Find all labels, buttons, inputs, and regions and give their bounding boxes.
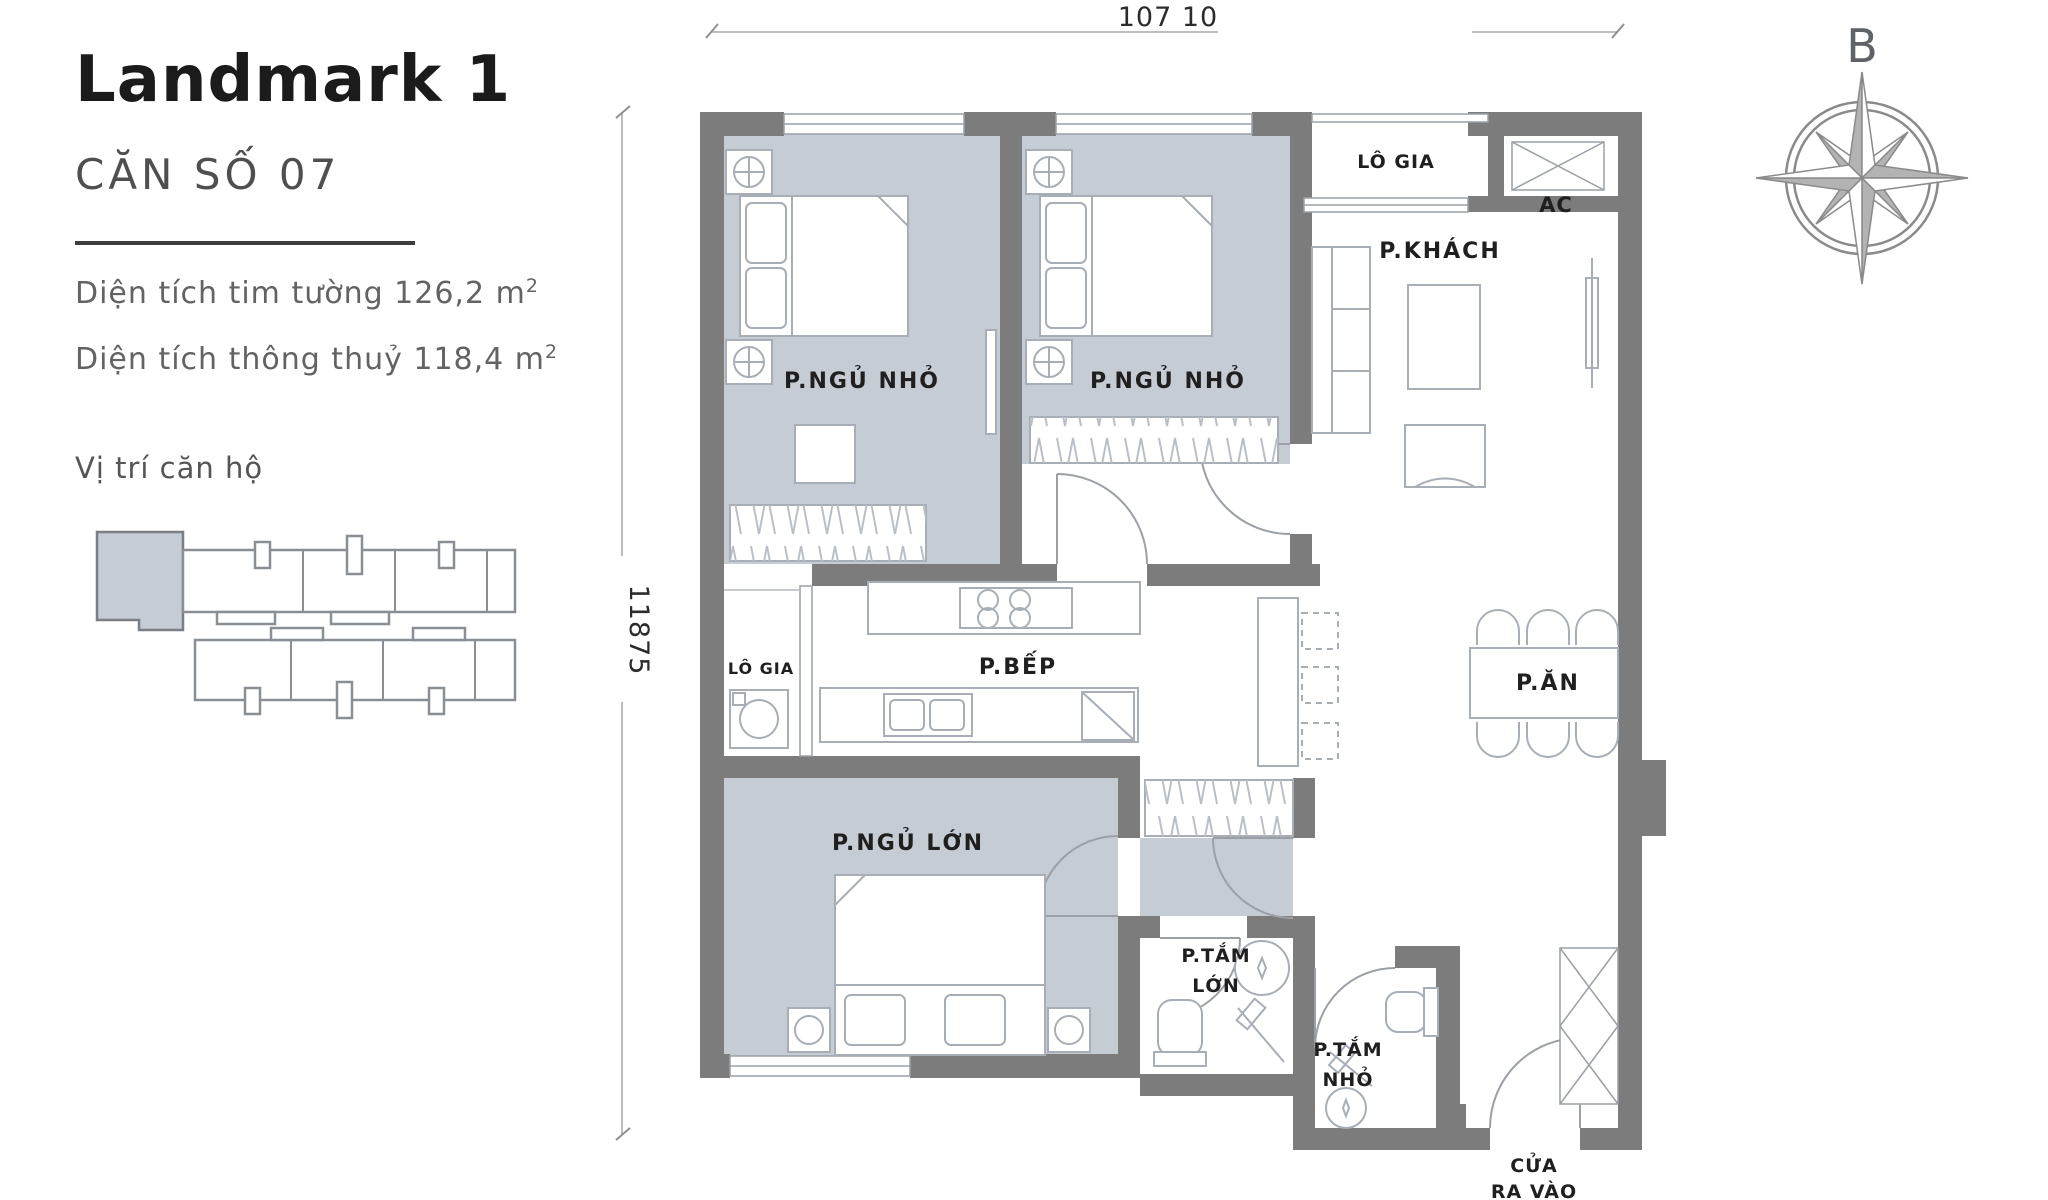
notch [439, 542, 454, 568]
label-bath-small-1: P.TẮM [1313, 1035, 1382, 1061]
label-bedroom-small-2: P.NGỦ NHỎ [1090, 366, 1246, 394]
highlighted-unit [97, 532, 183, 630]
notch [347, 536, 362, 574]
label-logia-side: LÔ GIA [728, 659, 794, 678]
top-dimension-value: 107 10 [1118, 2, 1218, 33]
washing-machine [730, 690, 788, 748]
label-living: P.KHÁCH [1379, 238, 1501, 264]
bath-small-door [1315, 968, 1395, 1048]
label-kitchen: P.BẾP [979, 651, 1057, 680]
living-furniture [1312, 247, 1598, 487]
notch [429, 688, 444, 714]
left-dimension-value: 11875 [623, 585, 654, 676]
compass-cardinal-points [1756, 72, 1968, 284]
master-window [730, 1056, 910, 1076]
balcony-railing [1312, 114, 1488, 122]
location-label: Vị trí căn hộ [75, 451, 575, 485]
notch [245, 688, 260, 714]
left-dimension: 11875 [616, 106, 654, 1140]
compass-north-label: B [1846, 19, 1878, 73]
hall-closet [1560, 948, 1618, 1104]
building-location-map [95, 528, 575, 728]
notch [255, 542, 270, 568]
bedroom1-window [784, 114, 964, 134]
area-net-sup: 2 [545, 341, 558, 363]
kitchen-island [1258, 598, 1338, 766]
label-ac: AC [1539, 193, 1573, 217]
label-entrance-2: RA VÀO [1491, 1180, 1577, 1200]
tab [271, 628, 323, 640]
label-bath-large-2: LỚN [1192, 973, 1240, 997]
top-dimension: 107 10 [706, 2, 1624, 38]
info-panel: Landmark 1 CĂN SỐ 07 Diện tích tim tường… [75, 48, 575, 485]
kitchen-furniture [820, 582, 1338, 766]
area-net: Diện tích thông thuỷ 118,4 m2 [75, 341, 575, 377]
furniture [726, 142, 1618, 1128]
building-bottom-row [195, 640, 515, 700]
label-entrance-1: CỬA [1510, 1152, 1558, 1177]
ac-unit-box [1512, 142, 1604, 190]
label-bedroom-small-1: P.NGỦ NHỎ [784, 366, 940, 394]
bedroom1-wardrobe [730, 505, 926, 561]
tab [217, 612, 275, 624]
unit-number: CĂN SỐ 07 [75, 150, 575, 199]
area-gross-sup: 2 [526, 275, 539, 297]
divider-line [75, 241, 415, 245]
bedroom1-door [1057, 474, 1147, 564]
balcony-living-window [1304, 198, 1468, 212]
label-bath-small-2: NHỎ [1323, 1066, 1374, 1091]
master-wardrobe [1145, 780, 1293, 836]
tab [331, 612, 389, 624]
bedroom2-wardrobe [1030, 417, 1278, 463]
floorplan-page: Landmark 1 CĂN SỐ 07 Diện tích tim tường… [0, 0, 2048, 1200]
project-title: Landmark 1 [75, 48, 575, 112]
vestibule-floor [1140, 838, 1293, 916]
compass-rose: B [1740, 0, 2040, 300]
floor-plan: P.NGỦ NHỎ P.NGỦ NHỎ LÔ GIA AC P.KHÁCH LÔ… [600, 0, 1700, 1200]
label-logia-top: LÔ GIA [1357, 149, 1435, 173]
bedroom2-window [1056, 114, 1252, 134]
area-gross-text: Diện tích tim tường 126,2 m [75, 276, 526, 311]
notch [337, 682, 352, 718]
label-dining: P.ĂN [1516, 670, 1580, 696]
area-gross: Diện tích tim tường 126,2 m2 [75, 275, 575, 311]
tab [413, 628, 465, 640]
label-bedroom-master: P.NGỦ LỚN [832, 828, 984, 856]
label-bath-large-1: P.TẮM [1181, 941, 1250, 967]
area-net-text: Diện tích thông thuỷ 118,4 m [75, 342, 545, 377]
